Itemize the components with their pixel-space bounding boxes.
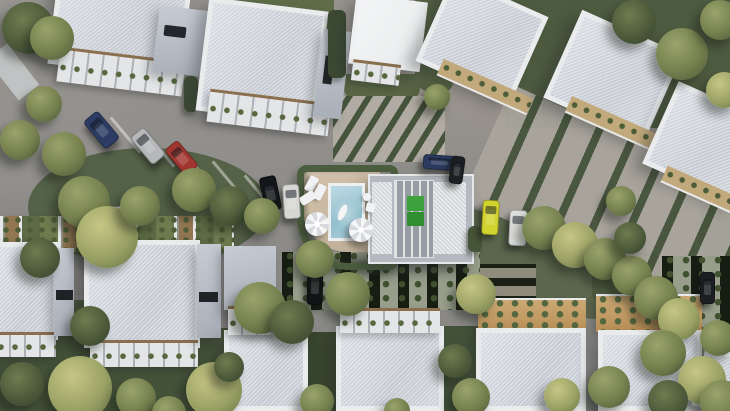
tree <box>214 352 244 382</box>
tree <box>296 240 334 278</box>
villa-roof <box>336 326 444 411</box>
tree <box>588 366 630 408</box>
tree <box>326 272 370 316</box>
tree <box>656 28 708 80</box>
car-yellow <box>481 200 500 236</box>
tree <box>640 330 686 376</box>
umbrella <box>305 212 329 236</box>
tree <box>614 222 646 254</box>
roof-panel <box>434 182 466 254</box>
green-roof-panel <box>407 196 424 211</box>
roof-panel <box>372 182 392 254</box>
tree <box>456 274 496 314</box>
umbrella <box>349 218 373 242</box>
tree <box>42 132 86 176</box>
hedge <box>468 226 482 252</box>
green-roof-panel <box>407 212 424 226</box>
tree <box>30 16 74 60</box>
tree <box>270 300 314 344</box>
tree <box>438 344 472 378</box>
car-dark <box>700 272 715 304</box>
tree <box>20 238 60 278</box>
tree <box>244 198 280 234</box>
tree <box>26 86 62 122</box>
side-table <box>363 193 371 201</box>
villa-sidewall <box>197 244 221 338</box>
tree <box>606 186 636 216</box>
hedge <box>328 10 346 78</box>
skylight <box>199 292 218 302</box>
tree <box>70 306 110 346</box>
car-dark-blue <box>83 110 121 150</box>
villa-terrace <box>90 340 198 367</box>
tree <box>48 356 112 411</box>
tree <box>0 120 40 160</box>
tree <box>116 378 156 411</box>
tree <box>700 320 730 356</box>
tree <box>544 378 580 411</box>
aerial-estate-render <box>0 0 730 411</box>
tree <box>0 362 44 406</box>
tree <box>300 384 334 411</box>
car-white <box>282 183 301 219</box>
tree <box>424 84 450 110</box>
tree <box>452 378 490 411</box>
villa-terrace <box>0 332 56 357</box>
skylight <box>56 290 73 300</box>
tree <box>120 186 160 226</box>
tree <box>612 0 656 44</box>
